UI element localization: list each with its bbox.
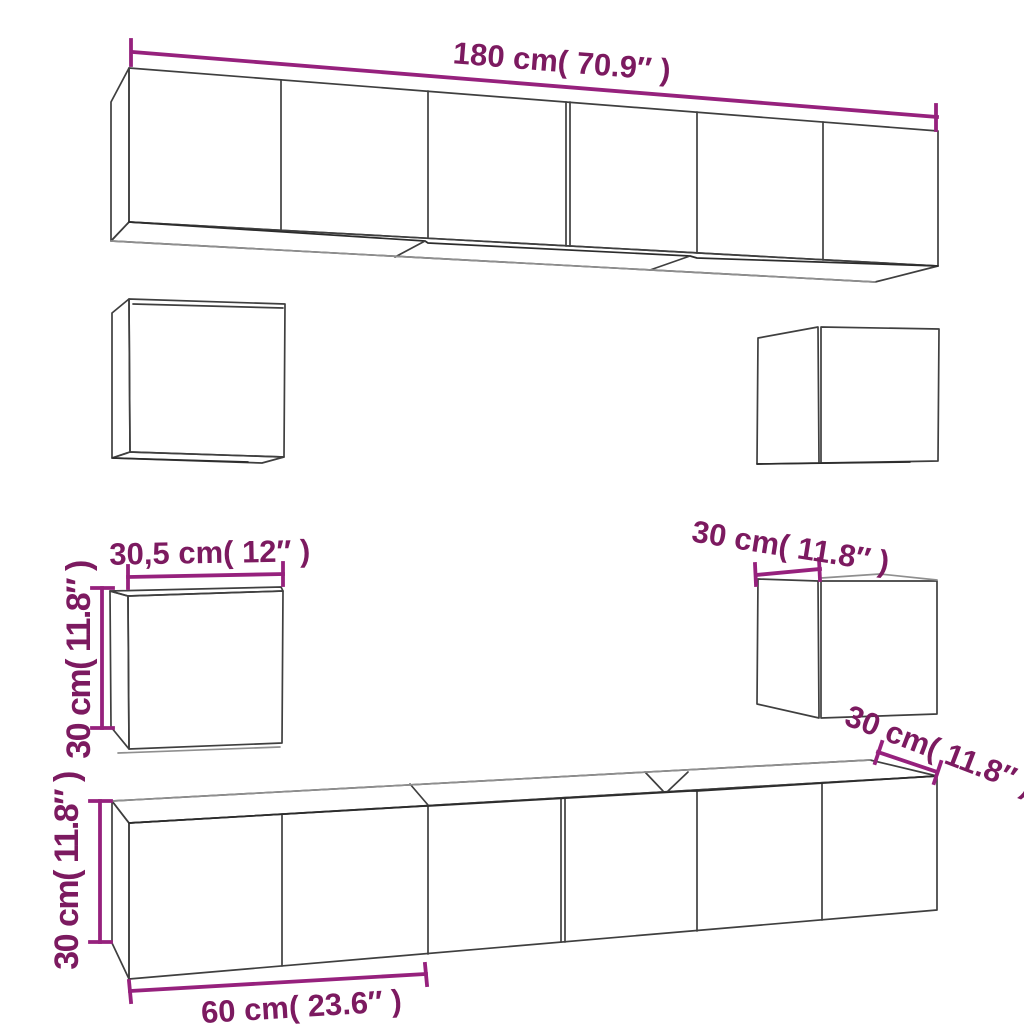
label-right-cabinet-depth: 30 cm( 11.8″ ) [690, 514, 892, 580]
diagram-canvas: 180 cm( 70.9″ ) 30,5 cm( 12″ ) 30 cm( 11… [0, 0, 1024, 1024]
lower-right-cube-cabinet [757, 574, 937, 718]
dimension-lines [90, 40, 941, 1002]
underside-seam [395, 241, 425, 257]
dim-line-right-depth [756, 569, 820, 575]
top-face-back-edge [112, 760, 870, 801]
dim-tick [129, 981, 131, 1002]
bottom-cabinet-front [129, 776, 937, 979]
label-bottom-door-width: 60 cm( 23.6″ ) [200, 983, 403, 1024]
bottom-cabinet-top-edge [129, 776, 937, 823]
top-cabinet-side-panel [111, 68, 129, 241]
underside-back-edge [111, 241, 875, 282]
left-cube-front [129, 299, 285, 457]
cabinets [110, 68, 939, 979]
upper-right-cube-cabinet [757, 327, 939, 464]
left-cube-bottom-edge [113, 458, 248, 462]
dim-tick [755, 564, 756, 585]
lower-left-cube-side-panel [110, 591, 129, 749]
label-small-cabinet-width: 30,5 cm( 12″ ) [109, 533, 311, 572]
top-face-seam [410, 784, 428, 805]
lower-right-cube-front [821, 581, 937, 718]
label-bottom-cabinet-height: 30 cm( 11.8″ ) [48, 772, 86, 970]
right-cube-side-panel [757, 327, 819, 464]
bottom-cabinet-side-panel [112, 801, 129, 979]
lower-right-cube-side-panel [757, 579, 819, 718]
bottom-cabinet-top-face [112, 760, 937, 823]
bottom-tv-cabinet [112, 760, 937, 979]
lower-left-cube-cabinet [110, 587, 283, 753]
lower-left-cube-front [128, 591, 283, 749]
dim-tick [425, 964, 427, 985]
door-top-edge [133, 304, 283, 308]
left-cube-side-panel [112, 299, 130, 458]
right-cube-front [821, 327, 939, 463]
top-cabinet-front [129, 68, 938, 266]
dim-line-small-width [128, 574, 283, 577]
dimension-diagram: 180 cm( 70.9″ ) 30,5 cm( 12″ ) 30 cm( 11… [0, 0, 1024, 1024]
right-cube-bottom-edge [757, 462, 910, 464]
underside-seam [650, 256, 690, 270]
upper-left-cube-cabinet [112, 299, 285, 463]
top-wall-cabinet [111, 68, 938, 282]
dimension-labels: 180 cm( 70.9″ ) 30,5 cm( 12″ ) 30 cm( 11… [48, 35, 1024, 1024]
top-face-seam [668, 772, 688, 791]
top-face-seam [645, 772, 663, 791]
label-small-cabinet-height: 30 cm( 11.8″ ) [60, 561, 98, 759]
top-cabinet-underside [111, 222, 938, 282]
